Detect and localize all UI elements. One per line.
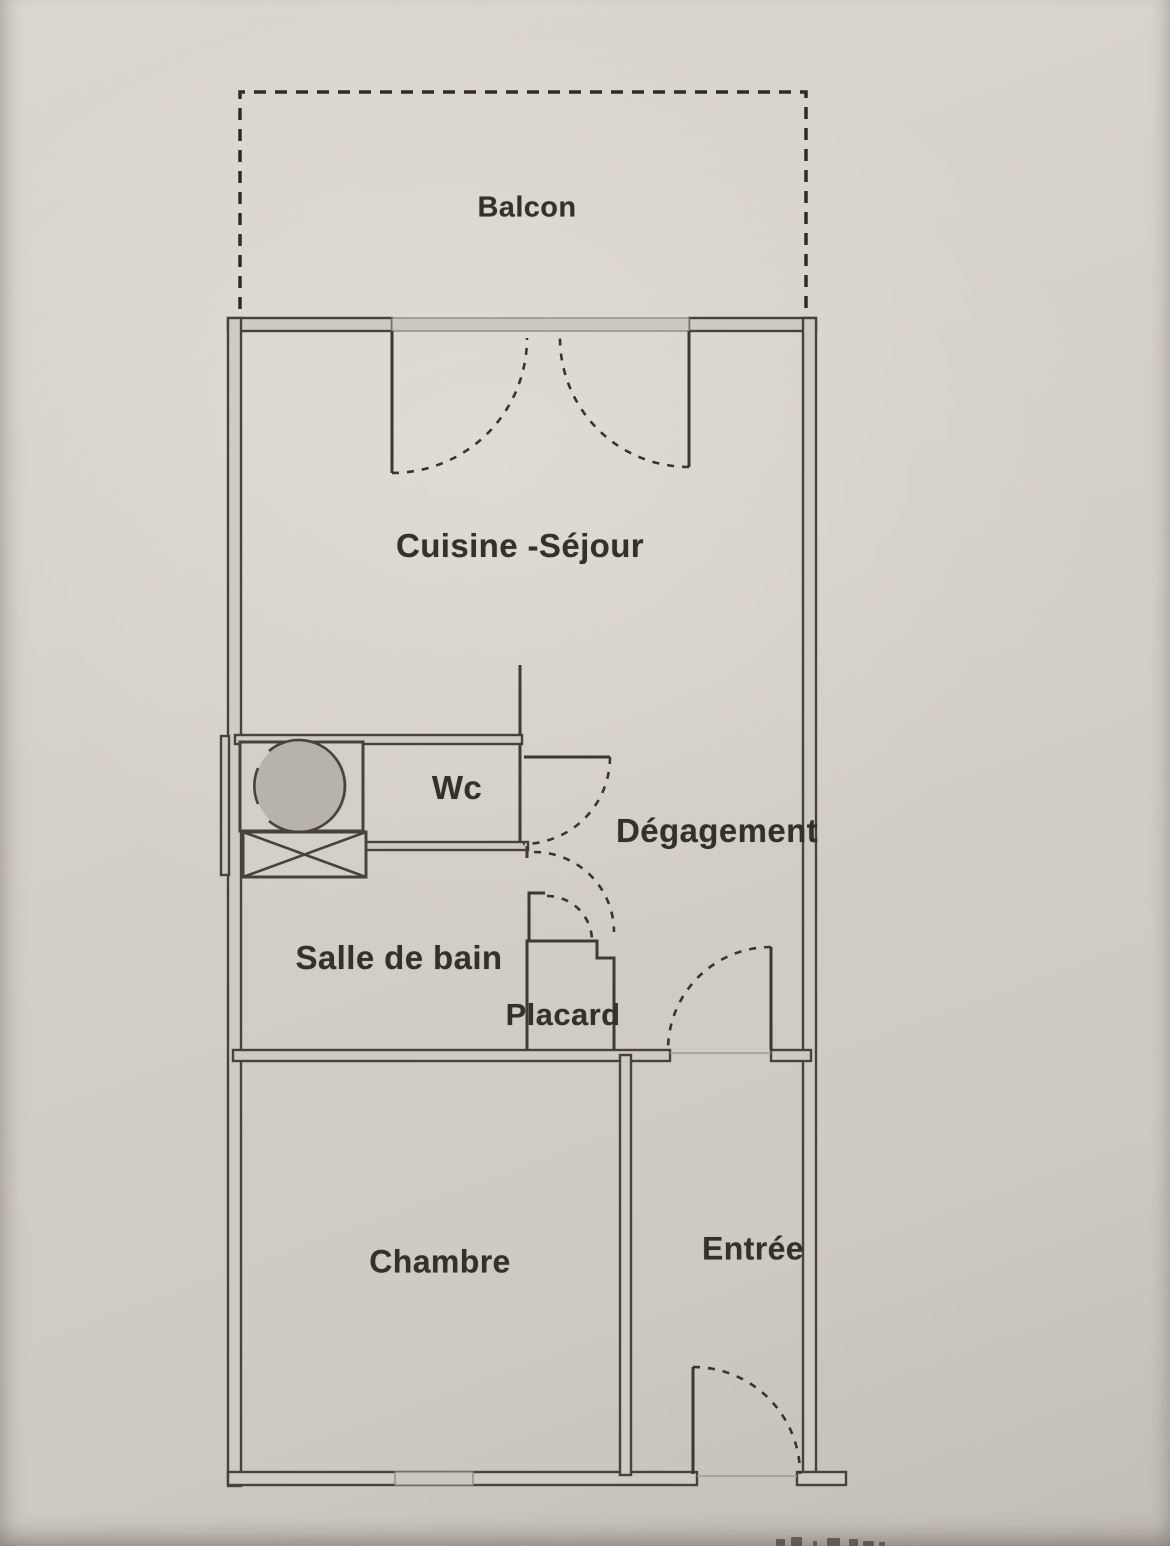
door-swing-arcs: [392, 338, 800, 1474]
bathroom-door-arc-outer: [534, 852, 614, 932]
room-label-balcon: Balcon: [477, 192, 576, 225]
room-label-entree: Entrée: [702, 1231, 804, 1268]
room-label-degagement: Dégagement: [616, 812, 818, 850]
washbasin-icon: [240, 740, 363, 832]
bottom-wall-light-segment: [395, 1472, 473, 1485]
floor-plan-drawing: [0, 0, 1170, 1546]
bathroom-door-arc-inner: [547, 896, 592, 941]
cut-off-text-marks: [776, 1537, 885, 1546]
door-leaves: [392, 331, 771, 1474]
main-entrance-door-arc: [693, 1367, 800, 1474]
room-label-wc: Wc: [432, 769, 482, 807]
room-label-salle-de-bain: Salle de bain: [296, 939, 503, 977]
scanned-floor-plan-photo: Balcon Cuisine -Séjour Wc Dégagement Sal…: [0, 0, 1170, 1546]
balcony-door-right-arc: [560, 338, 689, 467]
balcony-door-threshold: [392, 318, 689, 331]
placard-walls: [527, 941, 614, 1050]
exterior-walls: [221, 318, 846, 1486]
room-label-placard: Placard: [506, 997, 621, 1033]
fixtures: [240, 740, 366, 877]
hall-bottom-wall-right: [771, 1050, 811, 1061]
bathroom-door-leaf: [529, 893, 545, 941]
wc-door-arc: [523, 757, 610, 844]
entree-hall-door-arc: [668, 947, 771, 1050]
balcony-door-left-arc: [392, 338, 527, 473]
hall-bottom-wall: [233, 1050, 670, 1061]
water-heater-icon: [243, 832, 366, 877]
chambre-entree-wall: [620, 1055, 631, 1475]
room-label-cuisine-sejour: Cuisine -Séjour: [396, 527, 644, 565]
partition-lines: [520, 665, 614, 1050]
room-label-chambre: Chambre: [369, 1244, 511, 1281]
wc-bottom-wall: [363, 842, 528, 850]
